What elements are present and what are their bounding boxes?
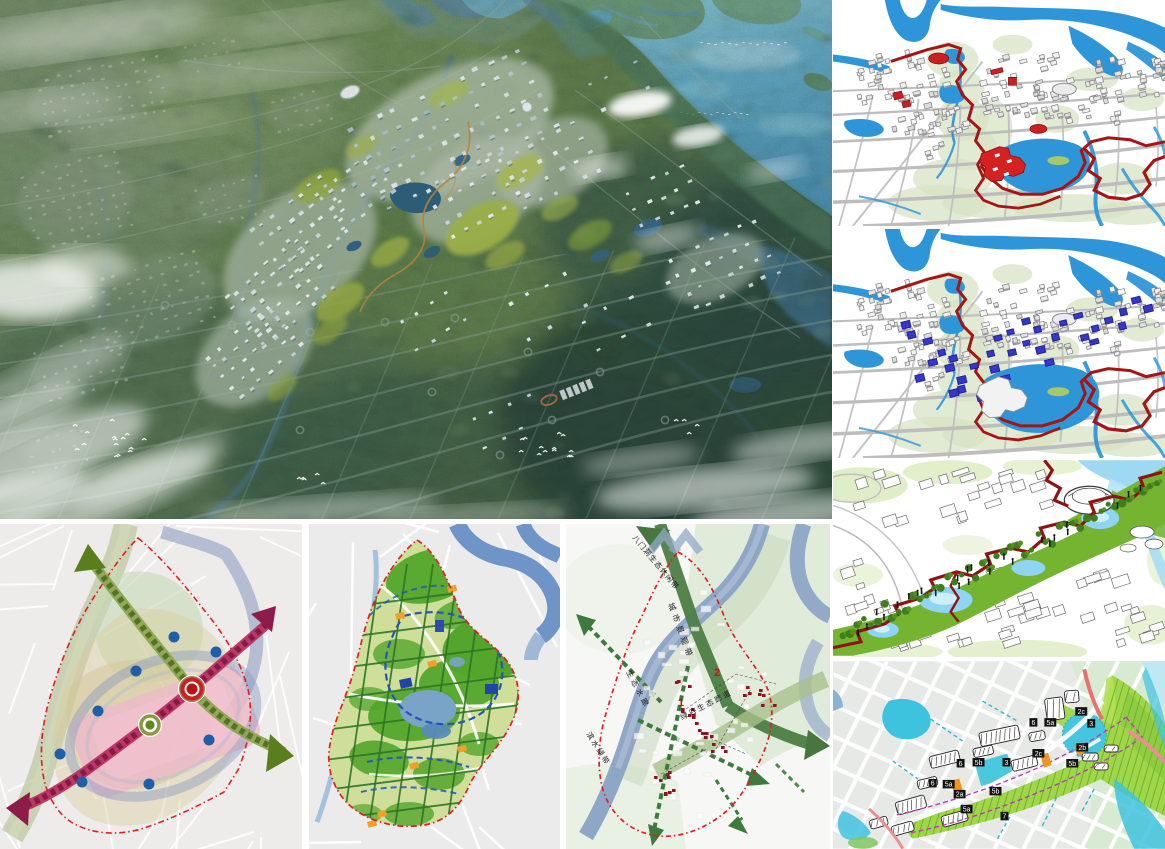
- svg-text:2b: 2b: [1078, 745, 1086, 752]
- svg-text:5a: 5a: [945, 782, 953, 789]
- svg-text:3: 3: [1005, 760, 1009, 767]
- svg-text:1: 1: [678, 697, 684, 709]
- svg-text:5a: 5a: [963, 807, 971, 814]
- svg-text:2c: 2c: [1078, 709, 1086, 716]
- svg-text:6: 6: [931, 781, 935, 788]
- svg-text:2a: 2a: [956, 792, 964, 799]
- svg-text:6: 6: [959, 761, 963, 768]
- svg-text:6: 6: [1031, 720, 1035, 727]
- svg-text:5a: 5a: [1046, 720, 1054, 727]
- svg-text:3: 3: [1089, 721, 1093, 728]
- svg-text:5b: 5b: [1068, 761, 1076, 768]
- svg-text:2c: 2c: [1035, 751, 1043, 758]
- svg-text:5b: 5b: [992, 789, 1000, 796]
- svg-text:2: 2: [714, 667, 720, 679]
- svg-text:5b: 5b: [975, 760, 983, 767]
- svg-text:7: 7: [1003, 814, 1007, 821]
